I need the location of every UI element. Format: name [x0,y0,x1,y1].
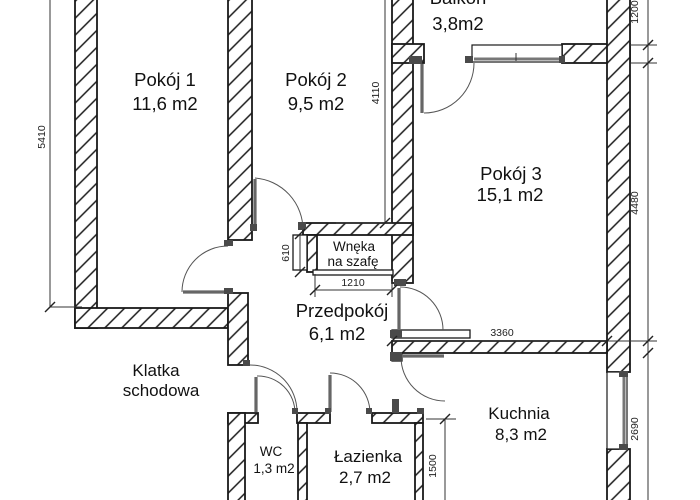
room-area-wc: 1,3 m2 [253,461,294,476]
wall-right-exterior-lower [607,449,630,500]
room-area-pokoj3: 15,1 m2 [477,184,544,205]
jamb-mark [392,399,399,413]
room-label-kuchnia: Kuchnia [488,404,550,423]
dimension-4110: 4110 [336,0,392,228]
dim-label-1210: 1210 [341,277,365,289]
room-label-wneka-line2: na szafę [327,254,378,269]
wall-right-exterior-upper [607,0,630,372]
dim-label-4480: 4480 [629,191,641,215]
floor-plan-page: 5410 4110 1200 4480 2690 610 [0,0,700,500]
room-label-balkon: Balkon [430,0,487,8]
wall-wc-lazienka [298,423,307,500]
door-lazienka [330,373,370,413]
dim-label-2690: 2690 [629,417,641,441]
door-pokoj2-swing [255,178,303,230]
dim-label-4110: 4110 [370,82,382,105]
room-area-pokoj1: 11,6 m2 [132,93,197,114]
wall-entrance-stub [228,293,248,365]
dim-label-610: 610 [280,244,292,262]
room-label-pokoj1: Pokój 1 [134,69,196,90]
floor-plan-svg: 5410 4110 1200 4480 2690 610 [0,0,700,500]
jamb-mark [409,56,422,64]
wall-wneka-stub [307,235,317,272]
jamb-mark [243,360,250,366]
room-area-pokoj2: 9,5 m2 [288,93,345,114]
dim-label-1500: 1500 [427,454,439,478]
room-labels: Balkon 3,8m2 Pokój 1 11,6 m2 Pokój 2 9,5… [123,0,551,487]
door-kuchnia-swing [401,357,445,401]
wall-bottom-seg2 [297,413,330,423]
wall-pokoj1-south [75,308,228,328]
room-label-wc: WC [260,444,283,459]
dim-label-1200: 1200 [629,0,641,24]
kuchnia-window-jamb-bottom [619,444,628,450]
wall-wneka-top [303,223,413,235]
dimension-1500: 1500 [426,414,456,500]
room-label-pokoj3: Pokój 3 [480,163,542,184]
jamb-mark [325,408,331,414]
wall-pokoj2-pokoj3 [392,0,413,283]
door-pokoj1-swing [182,246,228,292]
door-pokoj3 [399,287,443,330]
jamb-mark [292,408,298,414]
balkon-window-jamb-left [465,56,473,63]
dimension-1210: 1210 [310,274,397,297]
door-lazienka-swing [330,373,370,413]
kuchnia-window-jamb-top [619,371,628,377]
jamb-mark [394,279,406,286]
room-area-kuchnia: 8,3 m2 [495,425,547,444]
dim-label-5410: 5410 [36,125,48,149]
balkon-window [465,45,565,63]
room-area-balkon: 3,8m2 [432,13,483,34]
wall-wc-left [228,413,245,500]
jamb-mark [390,352,402,361]
jamb-mark [224,288,233,294]
jamb-mark [250,224,257,231]
door-pokoj2 [255,178,303,230]
room-label-klatka-line2: schodowa [123,381,200,400]
kuchnia-door-head [392,330,470,338]
room-area-przedpokoj: 6,1 m2 [309,323,366,344]
room-label-wneka-line1: Wnęka [333,239,376,254]
room-label-lazienka: Łazienka [334,447,403,466]
windows [465,45,628,450]
door-wc-swing [257,376,295,413]
wall-lazienka-right [415,423,423,500]
room-label-klatka-line1: Klatka [132,361,180,380]
room-area-lazienka: 2,7 m2 [339,468,391,487]
wall-kuchnia-north [392,341,607,353]
wneka-bottom-lip [313,270,393,275]
door-wc [256,376,295,413]
room-label-pokoj2: Pokój 2 [285,69,347,90]
door-pokoj1 [182,246,228,292]
jamb-mark [366,408,372,414]
wall-left-exterior [75,0,97,328]
wall-pokoj1-pokoj2 [228,0,252,240]
doors [182,63,474,413]
dim-label-3360: 3360 [490,327,514,339]
wall-bottom-seg3 [372,413,423,423]
room-label-przedpokoj: Przedpokój [296,300,389,321]
kuchnia-window [607,371,628,450]
door-kuchnia [401,356,445,401]
door-balkon [422,63,474,113]
jamb-mark [417,408,424,414]
balkon-window-jamb-right [559,56,565,63]
door-pokoj3-swing [400,287,443,330]
door-balkon-swing [424,63,474,113]
jamb-mark [224,240,233,246]
